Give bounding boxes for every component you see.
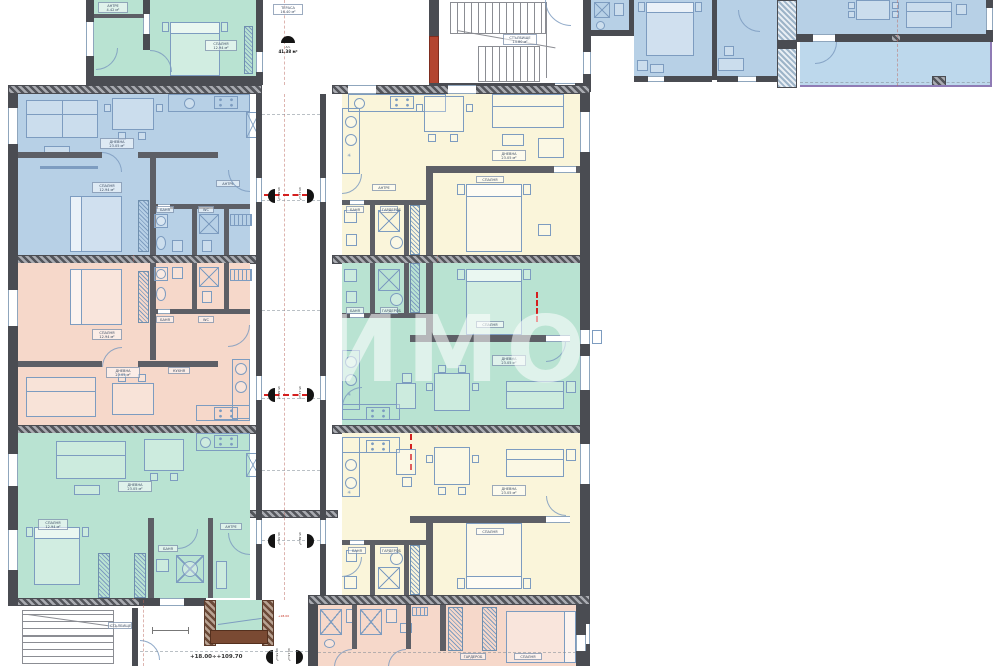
room-label: ГАРДЕРОБ — [380, 206, 398, 213]
chair — [472, 455, 479, 463]
room-label-area: 4.42 м² — [100, 8, 126, 12]
appliance — [345, 116, 357, 128]
chair — [138, 132, 146, 140]
entry-marker-area: 46.36 м² — [277, 532, 280, 545]
entry-marker-icon — [281, 36, 295, 43]
elevation-note: +18.00÷+109.70 — [190, 654, 242, 660]
grid-dash — [262, 470, 320, 471]
chair — [466, 104, 473, 112]
toilet — [172, 267, 183, 279]
stair-flight — [478, 46, 540, 82]
sofa-line — [492, 106, 564, 107]
chair — [458, 487, 466, 495]
slab-wall — [8, 85, 262, 94]
door-arc — [140, 640, 160, 660]
wall — [208, 518, 213, 598]
stove — [214, 407, 238, 420]
bed-pillow — [466, 576, 522, 589]
sink — [156, 287, 166, 301]
wardrobe — [138, 271, 149, 323]
boiler-symbol: ✳ — [347, 154, 351, 159]
bed-pillow — [564, 611, 576, 663]
nightstand — [162, 22, 169, 32]
sink — [324, 639, 335, 648]
room-label: БАНЯ — [156, 316, 174, 323]
desk — [718, 58, 744, 71]
entry-marker-icon — [307, 388, 314, 402]
room-label: ГАРДЕРОБ — [460, 653, 486, 660]
wardrobe — [138, 200, 149, 252]
room-label: СПАЛНЯ — [476, 176, 504, 183]
desk — [650, 64, 664, 73]
door-arc — [342, 557, 362, 577]
dining-table — [112, 383, 154, 415]
desk — [396, 449, 416, 475]
unit-bottom-pink: ГАРДЕРОБ СПАЛНЯ — [308, 595, 590, 666]
washer — [344, 576, 357, 589]
stove — [366, 407, 390, 420]
nightstand — [82, 527, 89, 537]
room-label: СПАЛНЯ 12.94 м² — [38, 519, 68, 530]
sink — [596, 21, 605, 30]
side-table — [566, 449, 576, 461]
chair — [426, 455, 433, 463]
stove — [214, 435, 238, 448]
entry-marker-area: 45.82 м² — [298, 532, 301, 545]
room-label: СПАЛНЯ 12.94 м² — [92, 182, 122, 193]
stove — [390, 96, 414, 109]
shower-drain — [390, 236, 403, 249]
door-arc — [228, 170, 250, 192]
door-gap — [160, 598, 184, 606]
sofa-line — [62, 100, 63, 138]
room-label: АНТРЕ — [372, 184, 396, 191]
room-label: СПАЛНЯ 12.94 м² — [92, 329, 122, 340]
window — [580, 112, 590, 152]
room-label-area: 23.05 м² — [108, 373, 138, 377]
grid-dash — [318, 652, 576, 653]
door-gap — [256, 376, 262, 400]
room-label: ТЕРАСА 16.40 м² — [273, 4, 303, 15]
room-label: АНТРЕ — [220, 523, 242, 530]
axis-line — [284, 94, 285, 600]
room-label-area: 23.05 м² — [494, 491, 524, 495]
axis-line — [897, 0, 898, 86]
shelf — [412, 607, 428, 616]
chair — [428, 134, 436, 142]
room-label: ДНЕВНА 23.05 м² — [492, 485, 526, 496]
entry-marker-area: 44.58 м² — [275, 648, 278, 661]
entry-marker-area: 43.12 м² — [298, 187, 301, 200]
sofa — [26, 377, 96, 417]
wall — [370, 205, 375, 255]
dining-table — [856, 0, 890, 20]
window — [580, 444, 590, 484]
door-gap — [554, 166, 576, 173]
nightstand — [695, 2, 702, 12]
room-label-area: 14.80 м² — [505, 40, 535, 44]
room-label-name: БАНЯ — [350, 549, 364, 553]
window — [448, 85, 476, 94]
entry-marker-area: 45.12 м² — [298, 386, 301, 399]
room-label-name: АНТРЕ — [222, 525, 240, 529]
wall — [429, 0, 439, 36]
nightstand — [523, 578, 531, 589]
wall — [406, 605, 411, 649]
chair — [156, 104, 163, 112]
entry-marker-icon — [268, 189, 275, 203]
room-label-name: БАНЯ — [158, 318, 172, 322]
stair-landing-line — [546, 2, 547, 78]
dining-table — [434, 447, 470, 485]
armchair — [538, 138, 564, 158]
wall — [18, 361, 102, 367]
wall — [18, 152, 102, 158]
room-label-name: СПАЛНЯ — [478, 178, 502, 182]
chair — [150, 473, 158, 481]
unit-right-yellow-2: ✳ ДНЕВНА 23.05 м² СПАЛНЯ — [342, 433, 580, 595]
toilet — [172, 240, 183, 252]
door-gap — [320, 178, 326, 202]
room-label: КУХНЯ — [168, 367, 190, 374]
sofa-line — [506, 459, 564, 460]
nightstand — [457, 269, 465, 280]
shower — [320, 609, 342, 635]
door-arc — [102, 152, 122, 172]
wall — [224, 263, 229, 309]
wardrobe — [448, 607, 463, 651]
red-level-note: +18.00 — [278, 614, 289, 618]
entry-marker-icon — [268, 388, 275, 402]
toilet — [614, 3, 624, 16]
bed-pillow — [170, 22, 220, 34]
room-label-name: ГАРДЕРОБ — [382, 549, 396, 553]
toilet — [346, 234, 357, 246]
bed-pillow — [70, 196, 82, 252]
room-label: ДНЕВНА 23.05 м² — [492, 150, 526, 161]
terrace-edge — [800, 85, 990, 87]
window — [143, 14, 150, 34]
nightstand — [523, 184, 531, 195]
room-label: СПАЛНЯ — [514, 653, 542, 660]
sink — [184, 98, 195, 109]
room-label-name: СПАЛНЯ — [478, 530, 502, 534]
dining-table — [424, 96, 464, 132]
room-label: ДНЕВНА 23.05 м² — [106, 367, 140, 378]
sink — [235, 381, 247, 393]
room-label: БАНЯ — [346, 206, 364, 213]
chair — [402, 477, 412, 487]
washer — [344, 269, 357, 282]
room-label-name: АНТРЕ — [374, 186, 394, 190]
entry-marker-icon — [307, 534, 314, 548]
sofa — [56, 441, 126, 479]
room-label-area: 12.94 м² — [94, 188, 120, 192]
room-label: ДНЕВНА 23.05 м² — [118, 481, 152, 492]
bed-pillow — [466, 184, 522, 197]
door-gap — [350, 200, 364, 205]
nightstand — [221, 22, 228, 32]
window — [86, 22, 94, 56]
wardrobe — [482, 607, 497, 651]
room-label-name: СТЪЛБИЩЕ — [505, 36, 535, 40]
room-label-area: 23.05 м² — [494, 156, 524, 160]
chair — [637, 60, 648, 71]
room-label-name: WC — [200, 318, 212, 322]
slab-wall — [308, 595, 590, 605]
room-label: СПАЛНЯ — [476, 528, 504, 535]
window — [348, 85, 376, 94]
unit-top-left-green: АНТРЕ 4.42 м² СПАЛНЯ 12.94 м² — [86, 0, 263, 94]
chair — [450, 134, 458, 142]
unit-left-blue: ДНЕВНА 23.05 м² СПАЛНЯ 12.94 м² БАНЯ WC — [18, 94, 250, 255]
room-label: АНТРЕ 4.42 м² — [98, 2, 128, 13]
wall — [440, 605, 446, 651]
wall — [94, 14, 144, 18]
room-label: СТЪЛБИЩЕ — [108, 622, 132, 629]
shower — [594, 2, 610, 18]
chair — [170, 473, 178, 481]
door-gap — [158, 309, 170, 314]
cabinet — [216, 561, 227, 589]
sofa — [492, 94, 564, 128]
coffee-table — [74, 485, 100, 495]
window — [8, 108, 18, 144]
boiler-symbol: ✳ — [347, 491, 351, 496]
wall — [192, 209, 197, 255]
room-label: WC — [198, 316, 214, 323]
wall — [426, 516, 433, 595]
dimension-line — [152, 630, 188, 631]
stair-flight — [450, 2, 546, 34]
room-label-name: СТЪЛБИЩЕ — [110, 624, 130, 628]
door-arc — [228, 325, 250, 347]
sink — [200, 437, 211, 448]
door-gap — [320, 520, 326, 544]
room-label: СПАЛНЯ 12.94 м² — [205, 40, 237, 51]
side-table — [956, 4, 967, 15]
room-label-area: 16.40 м² — [275, 10, 301, 14]
entry-marker-area: 43.84 м² — [277, 187, 280, 200]
appliance — [345, 459, 357, 471]
sink — [156, 236, 166, 250]
room-label-area: 12.94 м² — [207, 46, 235, 50]
shower — [199, 214, 219, 234]
window — [986, 8, 993, 30]
terrace-door-gap — [813, 34, 835, 42]
toilet — [386, 609, 397, 623]
door-gap — [546, 516, 570, 523]
door-arc — [102, 347, 122, 367]
chair — [416, 104, 423, 112]
sofa — [906, 2, 952, 28]
wardrobe — [134, 553, 146, 598]
marker-line2: 41.38 м² — [265, 49, 311, 54]
nightstand — [457, 184, 465, 195]
wardrobe-box — [378, 567, 400, 589]
watermark-small: imot — [672, 348, 771, 388]
stair-flight — [22, 610, 114, 664]
wall — [224, 209, 229, 255]
stove — [214, 96, 238, 109]
room-fill — [216, 600, 262, 630]
washer-drum — [156, 269, 166, 279]
room-label-area: 12.94 м² — [94, 335, 120, 339]
washer-drum — [156, 216, 166, 226]
wall — [148, 518, 154, 598]
armchair — [538, 224, 551, 236]
shower — [360, 609, 382, 635]
unit-top-right-blue — [588, 0, 1000, 92]
chair — [104, 104, 111, 112]
stairwell-bottom: СТЪЛБИЩЕ — [8, 600, 144, 666]
room-label-area: 23.05 м² — [120, 487, 150, 491]
unit-left-green: ДНЕВНА 23.05 м² СПАЛНЯ 12.94 м² БАНЯ АНТ… — [18, 433, 250, 598]
terrace-dashed-line — [800, 82, 990, 83]
wall-brown — [210, 630, 268, 644]
shower — [199, 267, 219, 287]
unit-left-pink: СПАЛНЯ 12.94 м² БАНЯ WC — [18, 263, 250, 425]
toilet — [202, 240, 212, 252]
room-label-name: СПАЛНЯ — [516, 655, 540, 659]
wall-hatch-block — [891, 34, 901, 42]
dimension-tick — [188, 627, 189, 634]
shower-drain — [182, 561, 198, 577]
entry-terrace-corridor: ТЕРАСА 16.40 м² Ап. 41.38 м² — [263, 0, 429, 85]
chair — [848, 11, 855, 18]
chair — [724, 46, 734, 56]
chair — [438, 487, 446, 495]
room-label: ДНЕВНА 23.05 м² — [100, 138, 134, 149]
room-label-name: ГАРДЕРОБ — [462, 655, 484, 659]
wall — [86, 76, 263, 85]
wall — [426, 166, 433, 255]
room-label-name: БАНЯ — [348, 208, 362, 212]
bed-pillow — [646, 2, 694, 13]
nightstand — [523, 269, 531, 280]
radiator — [244, 26, 253, 74]
window — [8, 454, 18, 486]
sofa — [506, 449, 564, 477]
room-label: ГАРДЕРОБ — [380, 547, 398, 554]
stairwell-top: СТЪЛБИЩЕ 14.80 м² — [429, 0, 591, 92]
entry-marker-icon — [296, 650, 303, 664]
wall — [192, 263, 197, 309]
closet-shelves — [230, 269, 252, 281]
room-label-name: WC — [200, 208, 212, 212]
wardrobe-box — [378, 269, 400, 291]
window — [576, 635, 586, 651]
closet-shelves — [230, 214, 252, 226]
room-label-name: КУХНЯ — [170, 369, 188, 373]
sofa-line — [56, 455, 126, 456]
tv-board — [40, 166, 98, 169]
grid-dash — [262, 310, 320, 311]
door-arc — [342, 174, 362, 194]
door-arc — [178, 529, 198, 549]
entry-marker-area: 44.16 м² — [287, 648, 290, 661]
wall — [352, 605, 357, 649]
fridge — [235, 363, 247, 375]
door-gap — [256, 178, 262, 202]
room-label: БАНЯ — [348, 547, 366, 554]
radiator — [410, 205, 420, 255]
nightstand — [638, 2, 645, 12]
room-label-name: БАНЯ — [158, 208, 172, 212]
room-label: БАНЯ — [158, 545, 178, 552]
entry-marker-text: Ап. 41.38 м² — [265, 45, 311, 57]
window — [8, 290, 18, 326]
washer — [156, 559, 169, 572]
dimension-tick — [152, 627, 153, 634]
watermark-big: ИМОТ — [322, 296, 664, 403]
grid-dash — [140, 651, 308, 652]
room-label-area: 12.94 м² — [40, 525, 66, 529]
dining-table — [144, 439, 184, 471]
room-label-name: БАНЯ — [160, 547, 176, 551]
room-label-area: 23.05 м² — [102, 144, 132, 148]
bed-pillow — [70, 269, 82, 325]
radiator — [410, 545, 420, 595]
wall — [634, 76, 712, 82]
dining-table — [112, 98, 154, 130]
nightstand — [457, 578, 465, 589]
terrace-edge — [990, 42, 992, 87]
wardrobe-box — [378, 210, 400, 232]
sofa-line — [26, 391, 96, 392]
bed-pillow — [466, 269, 522, 282]
room-label: БАНЯ — [156, 206, 174, 213]
room-label: СТЪЛБИЩЕ 14.80 м² — [503, 34, 537, 45]
floor-plan-canvas: АНТРЕ 4.42 м² СПАЛНЯ 12.94 м² ТЕРАСА 16.… — [0, 0, 1000, 666]
entry-protrusion — [204, 598, 274, 648]
wall — [370, 545, 375, 595]
door-gap — [350, 540, 364, 545]
room-label-name: ГАРДЕРОБ — [382, 208, 396, 212]
chair — [848, 2, 855, 9]
sofa-line — [906, 11, 952, 12]
nightstand — [26, 527, 33, 537]
entry-marker-icon — [268, 534, 275, 548]
wall — [591, 30, 634, 36]
wall — [404, 205, 409, 255]
room-label: WC — [198, 206, 214, 213]
central-corridor: 43.84 м² 43.12 м² 45.64 м² 45.12 м² 46.3… — [250, 94, 332, 600]
entry-marker-area: 45.64 м² — [277, 386, 280, 399]
coffee-table — [502, 134, 524, 146]
stair-stringer — [22, 636, 114, 637]
unit-right-yellow-1: ✳ ДНЕВНА 23.05 м² СПАЛНЯ — [342, 94, 580, 255]
door-gap — [648, 76, 664, 82]
appliance — [345, 477, 357, 489]
wall — [404, 545, 409, 595]
door-arc — [546, 496, 566, 516]
window — [256, 52, 263, 72]
entry-marker-icon — [266, 650, 273, 664]
window — [8, 530, 18, 570]
appliance — [345, 134, 357, 146]
toilet — [202, 291, 212, 303]
door-gap — [738, 76, 756, 82]
stove — [366, 440, 390, 453]
wall-block — [777, 40, 797, 49]
grid-dash — [262, 114, 320, 115]
door-arc — [228, 533, 250, 555]
wardrobe — [98, 553, 110, 598]
